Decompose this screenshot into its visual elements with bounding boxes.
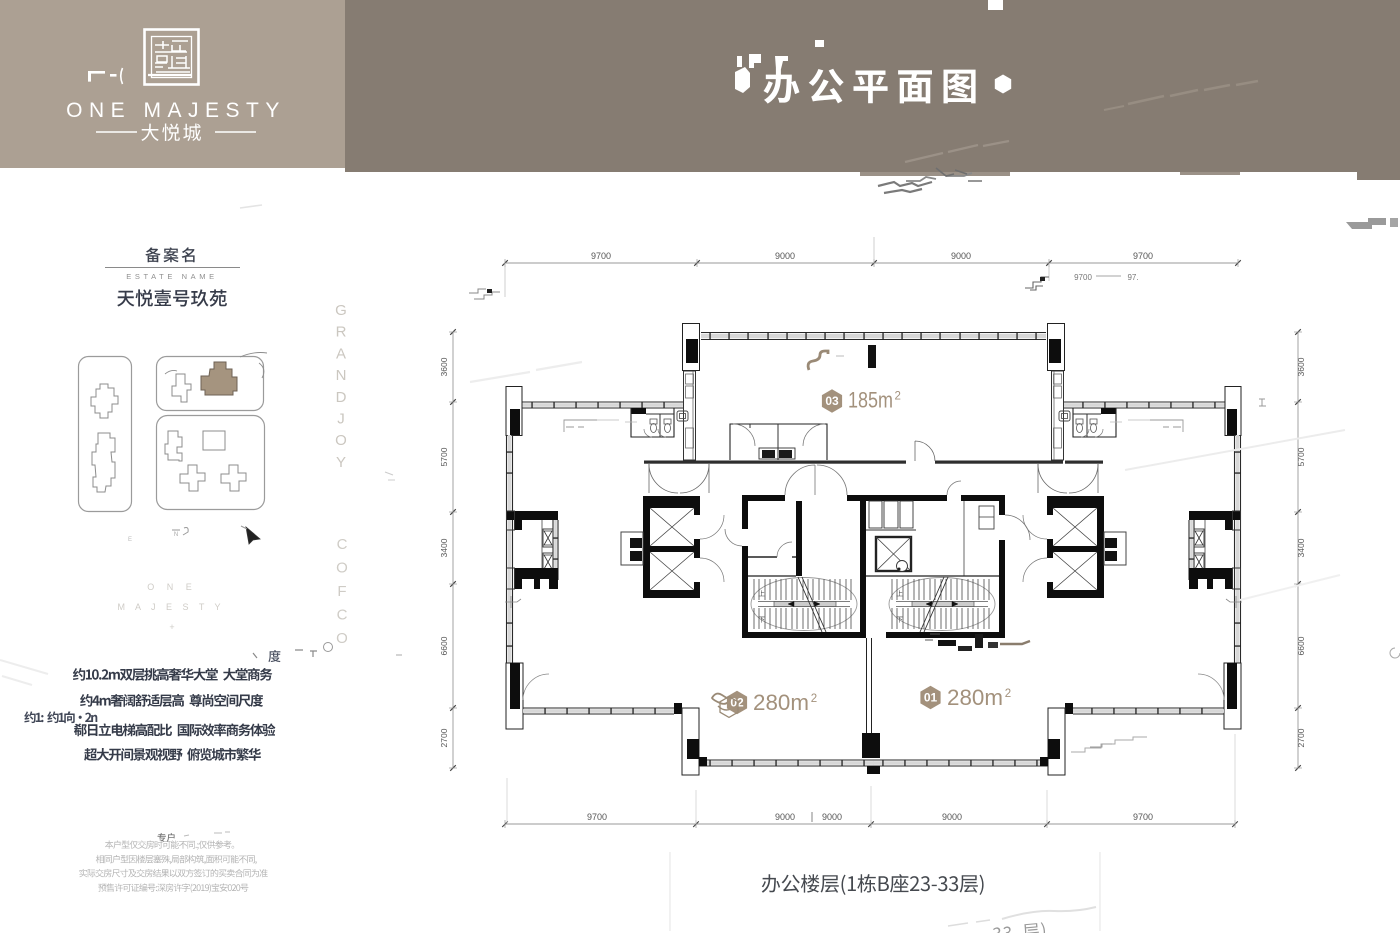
svg-text:+: + — [169, 622, 174, 632]
svg-text:280m: 280m — [753, 690, 809, 715]
svg-text:2700: 2700 — [439, 728, 449, 747]
svg-text:Y: Y — [336, 454, 346, 471]
svg-text:03: 03 — [825, 394, 839, 408]
svg-text:O: O — [335, 432, 347, 449]
svg-text:02: 02 — [730, 696, 744, 710]
svg-text:280m: 280m — [947, 685, 1003, 710]
svg-text:97.: 97. — [1127, 273, 1138, 282]
svg-text:9000: 9000 — [951, 251, 971, 261]
svg-text:D: D — [336, 389, 347, 406]
svg-text:185m: 185m — [848, 388, 893, 413]
svg-text:5700: 5700 — [1296, 447, 1306, 466]
svg-text:M A J E S T Y: M A J E S T Y — [117, 602, 224, 612]
svg-text:O N E: O N E — [147, 582, 197, 592]
svg-text:2700: 2700 — [1296, 728, 1306, 747]
svg-text:F: F — [337, 583, 346, 600]
svg-text:6600: 6600 — [439, 636, 449, 655]
svg-text:9000: 9000 — [822, 812, 842, 822]
svg-text:2: 2 — [811, 693, 817, 705]
svg-text:01: 01 — [924, 691, 938, 705]
svg-text:O: O — [336, 560, 348, 577]
svg-text:3400: 3400 — [1296, 538, 1306, 557]
svg-text:G: G — [335, 302, 347, 319]
svg-text:R: R — [336, 324, 347, 341]
svg-text:ESTATE NAME: ESTATE NAME — [126, 272, 217, 281]
svg-text:9700: 9700 — [591, 251, 611, 261]
svg-text:O: O — [336, 630, 348, 647]
svg-text:C: C — [337, 607, 348, 624]
svg-text:3600: 3600 — [1296, 357, 1306, 376]
svg-text:9000: 9000 — [775, 251, 795, 261]
svg-text:2: 2 — [895, 391, 901, 403]
svg-text:9700: 9700 — [1133, 812, 1153, 822]
svg-text:9000: 9000 — [942, 812, 962, 822]
svg-text:N: N — [336, 367, 347, 384]
svg-text:ONE MAJESTY: ONE MAJESTY — [66, 99, 286, 122]
svg-text:9700: 9700 — [1133, 251, 1153, 261]
svg-text:A: A — [336, 345, 346, 362]
svg-text:5700: 5700 — [439, 447, 449, 466]
svg-text:J: J — [337, 411, 345, 428]
svg-text:3400: 3400 — [439, 538, 449, 557]
svg-text:2: 2 — [1005, 688, 1011, 700]
svg-text:9000: 9000 — [775, 812, 795, 822]
svg-text:3600: 3600 — [439, 357, 449, 376]
svg-text:9700: 9700 — [1074, 273, 1092, 282]
svg-text:6600: 6600 — [1296, 636, 1306, 655]
svg-text:E: E — [128, 537, 132, 543]
svg-text:N: N — [174, 532, 178, 538]
svg-text:C: C — [337, 536, 348, 553]
svg-text:9700: 9700 — [587, 812, 607, 822]
